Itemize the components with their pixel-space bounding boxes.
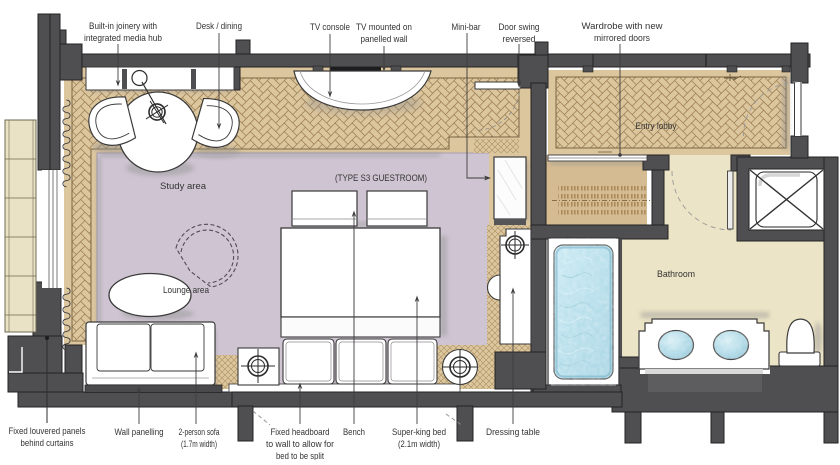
svg-text:mirrored doors: mirrored doors xyxy=(594,33,650,44)
svg-text:Super-king bed: Super-king bed xyxy=(392,427,446,438)
svg-text:(TYPE S3 GUESTROOM): (TYPE S3 GUESTROOM) xyxy=(335,173,427,184)
svg-text:Study area: Study area xyxy=(160,181,207,192)
svg-text:Fixed louvered panels: Fixed louvered panels xyxy=(9,426,86,437)
svg-text:Wardrobe with new: Wardrobe with new xyxy=(582,21,663,32)
svg-text:TV console: TV console xyxy=(310,22,350,33)
svg-text:panelled wall: panelled wall xyxy=(361,34,408,45)
svg-text:bed to be split: bed to be split xyxy=(276,451,324,460)
svg-text:(2.1m width): (2.1m width) xyxy=(398,439,440,450)
svg-text:Bathroom: Bathroom xyxy=(657,269,695,280)
svg-text:Bench: Bench xyxy=(343,427,365,438)
svg-text:Fixed headboard: Fixed headboard xyxy=(271,427,330,438)
svg-text:behind curtains: behind curtains xyxy=(21,438,74,449)
svg-text:Dressing table: Dressing table xyxy=(486,427,540,438)
svg-text:(1.7m width): (1.7m width) xyxy=(181,439,217,450)
svg-text:Door swing: Door swing xyxy=(499,22,540,33)
svg-text:2-person sofa: 2-person sofa xyxy=(179,427,221,438)
svg-text:reversed: reversed xyxy=(503,34,536,45)
svg-text:integrated media hub: integrated media hub xyxy=(84,33,162,44)
svg-text:Entry lobby: Entry lobby xyxy=(636,121,677,132)
svg-text:Wall panelling: Wall panelling xyxy=(115,427,164,438)
svg-text:Desk / dining: Desk / dining xyxy=(196,21,242,32)
svg-text:to wall to allow for: to wall to allow for xyxy=(266,439,334,450)
svg-text:Built-in joinery with: Built-in joinery with xyxy=(89,21,157,32)
svg-text:Mini-bar: Mini-bar xyxy=(452,22,481,33)
svg-text:Lounge area: Lounge area xyxy=(163,285,210,296)
svg-text:TV mounted on: TV mounted on xyxy=(356,22,412,33)
